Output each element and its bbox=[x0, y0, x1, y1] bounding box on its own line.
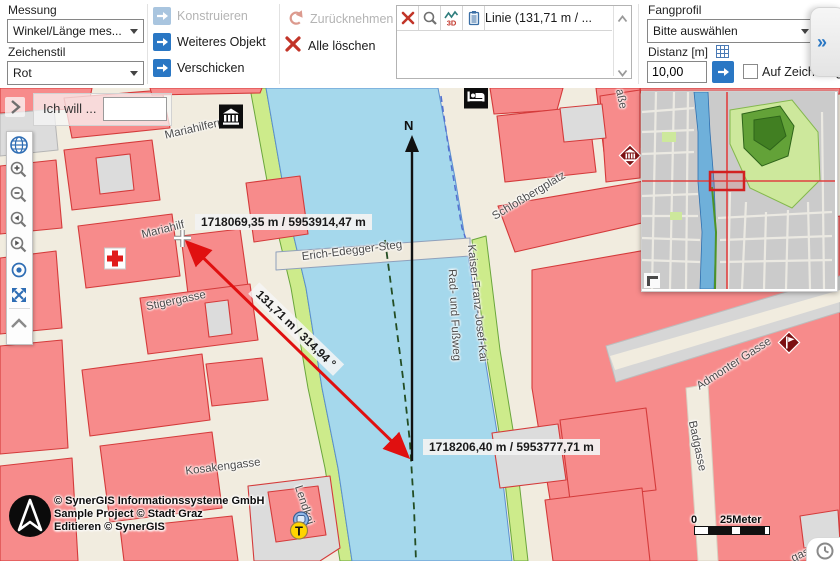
verschicken-button[interactable]: Verschicken bbox=[153, 59, 244, 77]
alle-loeschen-label: Alle löschen bbox=[308, 39, 375, 53]
konstruieren-label: Konstruieren bbox=[177, 9, 248, 23]
chevron-down-icon bbox=[130, 71, 138, 76]
arrow-right-icon bbox=[153, 33, 171, 51]
zuruecknehmen-button[interactable]: Zurücknehmen bbox=[286, 8, 393, 29]
search-label: Ich will ... bbox=[43, 101, 96, 116]
scroll-up-icon[interactable] bbox=[617, 10, 628, 28]
measurement-list-item[interactable]: Linie (131,71 m / ... bbox=[485, 6, 612, 31]
fangprofil-label: Fangprofil bbox=[648, 3, 701, 17]
chevron-down-icon bbox=[130, 29, 138, 34]
fangprofil-select[interactable]: Bitte auswählen bbox=[647, 19, 815, 43]
scroll-down-icon[interactable] bbox=[617, 64, 628, 82]
zoom-out-icon[interactable] bbox=[7, 182, 30, 207]
full-extent-icon[interactable] bbox=[7, 282, 30, 307]
previous-extent-icon[interactable] bbox=[7, 207, 30, 232]
tools-divider bbox=[9, 308, 30, 309]
messung-section-label: Messung bbox=[8, 3, 57, 17]
fangprofil-value: Bitte auswählen bbox=[653, 24, 738, 38]
draw-style-value: Rot bbox=[13, 66, 32, 80]
overview-map-panel bbox=[641, 91, 838, 292]
history-clock-button[interactable] bbox=[806, 537, 840, 561]
delete-x-icon bbox=[284, 35, 302, 56]
clock-icon bbox=[815, 541, 835, 561]
pharmacy-cross-icon[interactable] bbox=[104, 248, 126, 275]
zoom-in-icon[interactable] bbox=[7, 157, 30, 182]
toolbar-separator bbox=[147, 4, 148, 84]
konstruieren-button[interactable]: Konstruieren bbox=[153, 7, 248, 25]
next-extent-icon[interactable] bbox=[7, 232, 30, 257]
snap-checkbox[interactable] bbox=[743, 64, 758, 79]
distanz-label: Distanz [m] bbox=[648, 45, 708, 59]
svg-text:T: T bbox=[295, 524, 303, 539]
search-panel: Ich will ... bbox=[33, 93, 172, 126]
extent-rectangle[interactable] bbox=[710, 172, 744, 190]
collapse-tools-icon[interactable] bbox=[7, 310, 30, 335]
hotel-icon[interactable] bbox=[464, 88, 488, 114]
report-icon[interactable] bbox=[463, 6, 485, 31]
scalebar-zero-label: 0 bbox=[691, 514, 697, 526]
copyright-line-1: © SynerGIS Informationssysteme GmbH bbox=[54, 495, 264, 508]
zoom-to-measurement-icon[interactable] bbox=[419, 6, 441, 31]
overview-collapse-button[interactable] bbox=[644, 273, 660, 288]
arrow-right-icon bbox=[153, 7, 171, 25]
measure-type-select[interactable]: Winkel/Länge mes... bbox=[7, 19, 144, 43]
chevron-down-icon bbox=[801, 29, 809, 34]
apply-distance-button[interactable] bbox=[712, 61, 734, 83]
taxi-icon[interactable]: T bbox=[287, 511, 313, 546]
scalebar-max-label: 25Meter bbox=[720, 514, 762, 526]
arrow-right-icon bbox=[153, 59, 171, 77]
distanz-input[interactable] bbox=[647, 61, 707, 83]
copyright-text: © SynerGIS Informationssysteme GmbH Samp… bbox=[54, 495, 264, 534]
scale-bar bbox=[694, 526, 770, 535]
flag-diamond-icon[interactable] bbox=[773, 327, 805, 364]
weiteres-objekt-button[interactable]: Weiteres Objekt bbox=[153, 33, 266, 51]
double-chevron-right-icon: » bbox=[817, 32, 827, 53]
profile-3d-icon[interactable]: 3D bbox=[441, 6, 463, 31]
compass-logo bbox=[8, 494, 52, 543]
app-window: Messung Winkel/Länge mes... Zeichenstil … bbox=[0, 0, 840, 561]
verschicken-label: Verschicken bbox=[177, 61, 244, 75]
overview-map[interactable] bbox=[642, 92, 835, 289]
delete-measurement-icon[interactable] bbox=[397, 6, 419, 31]
zuruecknehmen-label: Zurücknehmen bbox=[310, 12, 393, 26]
copyright-line-2: Sample Project © Stadt Graz bbox=[54, 508, 264, 521]
svg-text:3D: 3D bbox=[447, 18, 457, 27]
center-target-icon[interactable] bbox=[7, 257, 30, 282]
draw-style-select[interactable]: Rot bbox=[7, 61, 144, 85]
undo-arrow-icon bbox=[286, 8, 304, 29]
search-input[interactable] bbox=[103, 97, 167, 121]
expand-toolbar-button[interactable]: » bbox=[810, 7, 840, 77]
toolbar-separator bbox=[638, 4, 639, 84]
toolbar-separator bbox=[279, 4, 280, 84]
map-viewport: MariahilferplatzMariahilfErich-Edegger-S… bbox=[0, 88, 840, 561]
north-label: N bbox=[404, 118, 413, 133]
ribbon-toolbar: Messung Winkel/Länge mes... Zeichenstil … bbox=[0, 0, 840, 88]
measurement-results-panel: 3D Linie (131,71 m / ... bbox=[396, 5, 632, 79]
sidebar-expand-button[interactable] bbox=[5, 97, 25, 117]
end-coordinate-label: 1718206,40 m / 5953777,71 m bbox=[423, 439, 600, 455]
corner-arrow-icon bbox=[647, 276, 658, 286]
results-scrollbar[interactable] bbox=[613, 6, 631, 76]
measure-type-value: Winkel/Länge mes... bbox=[13, 24, 122, 38]
zeichenstil-label: Zeichenstil bbox=[8, 45, 65, 59]
museum-icon[interactable] bbox=[219, 105, 243, 134]
overview-globe-icon[interactable] bbox=[7, 132, 30, 157]
start-coordinate-label: 1718069,35 m / 5953914,47 m bbox=[195, 214, 372, 230]
weiteres-objekt-label: Weiteres Objekt bbox=[177, 35, 266, 49]
alle-loeschen-button[interactable]: Alle löschen bbox=[284, 35, 375, 56]
copyright-line-3: Editieren © SynerGIS bbox=[54, 521, 264, 534]
map-tools-panel bbox=[6, 131, 33, 345]
